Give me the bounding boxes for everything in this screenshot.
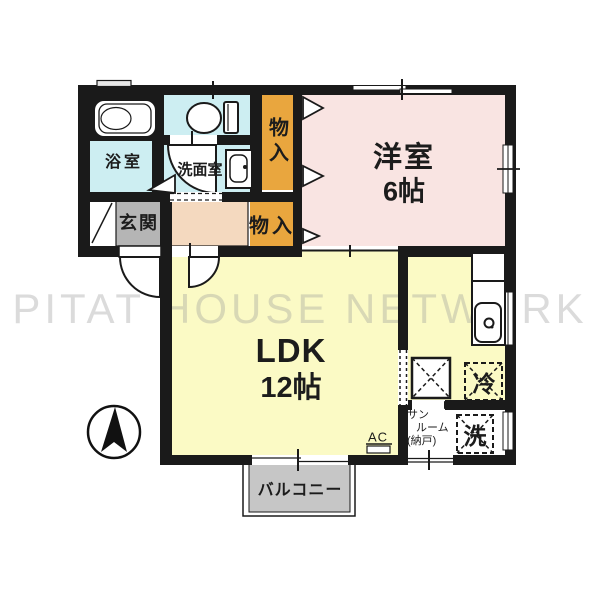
label-closet-upper: 物入	[263, 117, 292, 167]
balcony-sliding-door	[252, 455, 348, 465]
sunroom-bottom-window	[408, 455, 453, 465]
label-sunroom: サン ルーム (納戸)	[407, 409, 449, 448]
closet-door-marker	[303, 229, 319, 243]
closet-door-marker	[303, 166, 323, 186]
label-sunroom-line3: (納戸)	[407, 435, 449, 448]
floor-plan: PITAT HOUSE NETWORK	[0, 0, 600, 600]
bath-window	[97, 81, 131, 87]
entrance-step-line	[92, 203, 112, 243]
entrance-doorway	[119, 246, 161, 257]
washroom-doorway	[170, 135, 217, 145]
ac-marker	[366, 444, 392, 453]
label-entrance: 玄関	[119, 209, 159, 235]
plan-structure	[0, 0, 600, 600]
kitchen-counter-icon	[472, 253, 505, 345]
label-ac: AC	[368, 430, 388, 445]
toilet-icon	[187, 102, 238, 133]
label-washroom: 洗面室	[177, 159, 222, 180]
closet-door-marker	[303, 97, 323, 119]
label-closet-lower: 物入	[249, 210, 295, 239]
label-fridge-space: 冷	[473, 365, 496, 399]
label-western-size: 6帖	[383, 170, 425, 209]
hatch-box-icon	[412, 358, 450, 398]
washbasin-icon	[226, 150, 252, 188]
label-bath: 浴室	[105, 148, 143, 172]
label-balcony: バルコニー	[258, 476, 343, 500]
label-sunroom-line1: サン	[407, 409, 449, 422]
ldk-doorway	[172, 246, 218, 257]
entrance-door-swing	[120, 257, 160, 297]
label-ldk-size: 12帖	[260, 364, 321, 406]
compass-icon	[88, 406, 140, 458]
label-sunroom-line2: ルーム	[407, 422, 449, 435]
ldk-door-swing	[189, 257, 219, 287]
label-washer-space: 洗	[464, 417, 487, 451]
bathtub-icon	[88, 95, 161, 141]
western-top-window	[353, 86, 406, 91]
